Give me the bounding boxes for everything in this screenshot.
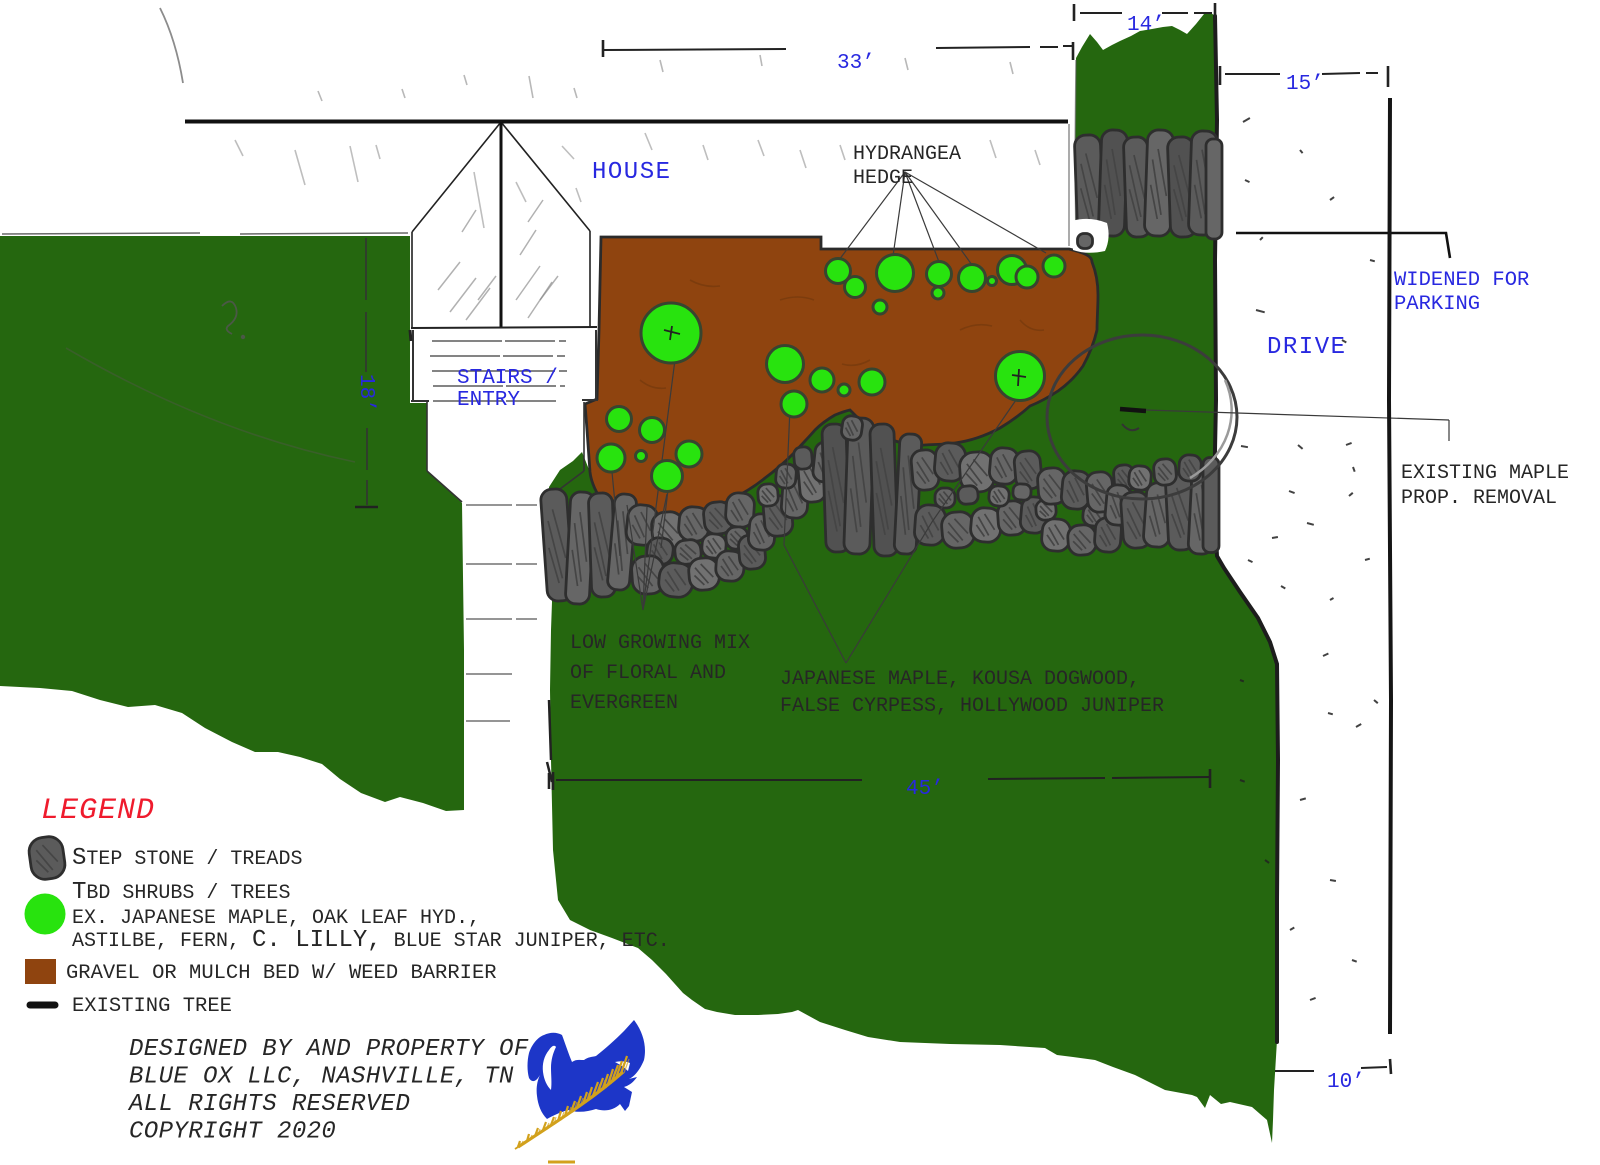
- svg-text:LOW GROWING MIX: LOW GROWING MIX: [570, 632, 750, 655]
- svg-text:FALSE CYRPESS, HOLLYWOOD JUNIP: FALSE CYRPESS, HOLLYWOOD JUNIPER: [780, 695, 1164, 718]
- svg-text:LEGEND: LEGEND: [41, 794, 155, 828]
- svg-text:STEP STONE / TREADS: STEP STONE / TREADS: [72, 845, 302, 872]
- svg-text:HYDRANGEA: HYDRANGEA: [853, 143, 961, 166]
- svg-text:JAPANESE MAPLE, KOUSA DOGWOOD,: JAPANESE MAPLE, KOUSA DOGWOOD,: [780, 668, 1140, 691]
- svg-text:HEDGE: HEDGE: [853, 167, 913, 190]
- svg-text:EVERGREEN: EVERGREEN: [570, 692, 678, 715]
- svg-text:ASTILBE, FERN, C. LILLY, BLUE: ASTILBE, FERN, C. LILLY, BLUE STAR JUNIP…: [72, 927, 670, 954]
- svg-text:EXISTING TREE: EXISTING TREE: [72, 995, 232, 1018]
- svg-text:COPYRIGHT 2020: COPYRIGHT 2020: [129, 1119, 336, 1146]
- svg-text:OF FLORAL AND: OF FLORAL AND: [570, 662, 726, 685]
- svg-text:10’: 10’: [1327, 1071, 1365, 1094]
- svg-text:DRIVE: DRIVE: [1267, 334, 1347, 361]
- svg-text:WIDENED FOR: WIDENED FOR: [1394, 269, 1529, 292]
- svg-text:STAIRS /: STAIRS /: [457, 367, 558, 390]
- svg-text:15’: 15’: [1286, 73, 1324, 96]
- svg-text:PARKING: PARKING: [1394, 293, 1480, 316]
- svg-text:45’: 45’: [906, 778, 944, 801]
- svg-text:PROP. REMOVAL: PROP. REMOVAL: [1401, 487, 1557, 510]
- svg-text:ALL RIGHTS RESERVED: ALL RIGHTS RESERVED: [127, 1091, 410, 1118]
- svg-text:HOUSE: HOUSE: [592, 159, 672, 186]
- svg-text:33’: 33’: [837, 52, 875, 75]
- svg-text:EXISTING MAPLE: EXISTING MAPLE: [1401, 462, 1569, 485]
- svg-text:ENTRY: ENTRY: [457, 389, 520, 412]
- svg-text:BLUE OX LLC, NASHVILLE, TN: BLUE OX LLC, NASHVILLE, TN: [129, 1064, 514, 1091]
- svg-text:TBD SHRUBS / TREES: TBD SHRUBS / TREES: [72, 879, 290, 906]
- svg-text:DESIGNED BY AND PROPERTY OF: DESIGNED BY AND PROPERTY OF: [129, 1036, 529, 1063]
- svg-text:14’: 14’: [1127, 14, 1165, 37]
- svg-text:18’: 18’: [354, 374, 377, 412]
- svg-text:GRAVEL OR MULCH BED W/ WEED BA: GRAVEL OR MULCH BED W/ WEED BARRIER: [66, 962, 497, 985]
